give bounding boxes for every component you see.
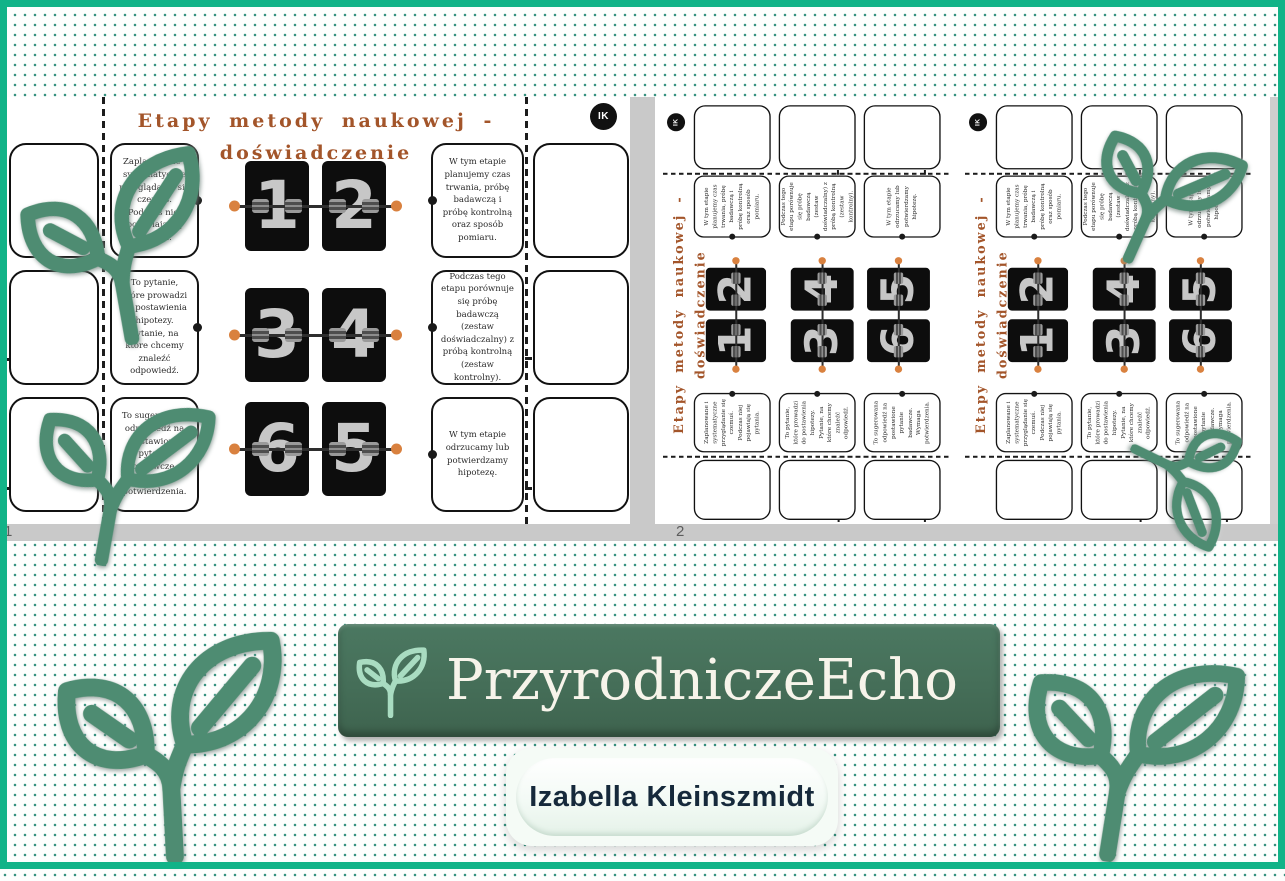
rod-end-dot — [229, 201, 240, 212]
brand-banner: PrzyrodniczeEcho — [338, 624, 1000, 737]
rod-end-dot — [732, 365, 739, 372]
rod-end-dot — [732, 257, 739, 264]
page-number-2: 2 — [676, 523, 684, 540]
step-description-text: W tym etapie planujemy czas trwania, pró… — [703, 181, 762, 231]
rod-end-dot — [229, 330, 240, 341]
flip-counter-row: 6 5 — [867, 268, 930, 362]
connector-dot — [899, 391, 905, 397]
sprout-leaf-icon — [356, 644, 430, 718]
creator-badge: IK — [590, 103, 617, 130]
rod-end-dot — [391, 201, 402, 212]
step-description-text: Podczas tego etapu porównuje się próbę b… — [779, 181, 855, 231]
flip-hinge — [1120, 324, 1129, 335]
step-description-box: W tym etapie odrzucamy lub potwierdzamy … — [431, 397, 524, 512]
empty-cut-box — [694, 105, 771, 169]
step-description-box: To sugerowana odpowiedź na postawione py… — [864, 393, 941, 453]
worksheet-title-line1: Etapy metody naukowej - — [116, 105, 516, 137]
cut-line-vertical — [525, 97, 528, 524]
step-description-text: W tym etapie odrzucamy lub potwierdzamy … — [440, 429, 515, 479]
step-description-text: Zaplanowane i systematyczne przyglądanie… — [1005, 399, 1064, 446]
flip-counter-row: 3 4 — [791, 268, 854, 362]
flip-hinge — [1120, 295, 1129, 306]
connector-dot — [1031, 234, 1037, 240]
flip-hinge — [1033, 295, 1042, 306]
sprout-leaf-icon — [996, 625, 1266, 881]
step-description-box: W tym etapie planujemy czas trwania, pró… — [694, 175, 771, 237]
connector-dot — [729, 234, 735, 240]
flip-hinge — [731, 295, 740, 306]
empty-cut-box — [533, 397, 629, 512]
flip-hinge — [1120, 272, 1129, 283]
flip-hinge — [1033, 324, 1042, 335]
rod-end-dot — [1034, 365, 1041, 372]
flip-counter-row: 3 4 — [245, 288, 386, 382]
empty-cut-box — [694, 460, 771, 520]
flip-hinge — [1033, 346, 1042, 357]
creator-badge: IK — [667, 113, 685, 131]
empty-cut-box — [779, 460, 856, 520]
connector-dot — [428, 323, 437, 332]
flip-hinge — [894, 272, 903, 283]
connector-dot — [814, 234, 820, 240]
step-description-text: Podczas tego etapu porównuje się próbę b… — [440, 271, 515, 384]
connector-dot — [1031, 391, 1037, 397]
creator-badge: IK — [969, 113, 987, 131]
step-description-text: To sugerowana odpowiedź na postawione py… — [873, 399, 932, 446]
flip-hinge — [818, 295, 827, 306]
author-pill: Izabella Kleinszmidt — [516, 758, 828, 836]
flip-hinge — [362, 328, 379, 342]
worksheet-title-line1: Etapy metody naukowej - — [970, 181, 991, 449]
connector-dot — [1116, 391, 1122, 397]
step-description-text: Zaplanowane i systematyczne przyglądanie… — [703, 399, 762, 446]
rod-end-dot — [1121, 365, 1128, 372]
empty-cut-box — [533, 270, 629, 385]
connector-dot — [899, 234, 905, 240]
flip-hinge — [252, 199, 269, 213]
cut-line-vertical — [663, 456, 949, 458]
flip-hinge — [329, 328, 346, 342]
flip-hinge — [285, 442, 302, 456]
empty-cut-box — [996, 460, 1073, 520]
flip-counter-row: 1 2 — [1008, 268, 1068, 362]
flip-hinge — [731, 346, 740, 357]
flip-hinge — [1196, 295, 1205, 306]
flip-counter-row: 1 2 — [245, 161, 386, 251]
connector-dot — [1201, 391, 1207, 397]
rod-end-dot — [895, 365, 902, 372]
rod-end-dot — [895, 257, 902, 264]
step-description-box: Zaplanowane i systematyczne przyglądanie… — [694, 393, 771, 453]
rod-end-dot — [1034, 257, 1041, 264]
step-description-text: W tym etapie planujemy czas trwania, pró… — [1005, 181, 1064, 231]
step-description-box: W tym etapie planujemy czas trwania, pró… — [996, 175, 1073, 237]
step-description-text: W tym etapie planujemy czas trwania, pró… — [440, 156, 515, 244]
rod-end-dot — [391, 330, 402, 341]
sprout-leaf-icon — [40, 619, 314, 870]
rotated-worksheet-copy: Etapy metody naukowej - doświadczenie IK… — [663, 104, 949, 522]
sprout-leaf-icon — [2, 371, 242, 585]
worksheet-sheet: Etapy metody naukowej - doświadczenie IK… — [663, 104, 949, 522]
flip-hinge — [894, 295, 903, 306]
flip-hinge — [818, 346, 827, 357]
step-description-box: W tym etapie odrzucamy lub potwierdzamy … — [864, 175, 941, 237]
rod-end-dot — [819, 365, 826, 372]
page-right-shadow — [1270, 97, 1280, 540]
flip-hinge — [1196, 324, 1205, 335]
empty-cut-box — [864, 105, 941, 169]
flip-hinge — [894, 324, 903, 335]
flip-counter-row: 1 2 — [706, 268, 766, 362]
worksheet-title-line1: Etapy metody naukowej - — [668, 181, 689, 449]
empty-cut-box — [864, 460, 941, 520]
flip-hinge — [252, 328, 269, 342]
author-name: Izabella Kleinszmidt — [529, 781, 815, 814]
step-description-box: Zaplanowane i systematyczne przyglądanie… — [996, 393, 1073, 453]
rod-end-dot — [819, 257, 826, 264]
rod-end-dot — [391, 444, 402, 455]
step-description-box: To pytanie, które prowadzi do postawieni… — [779, 393, 856, 453]
flip-hinge — [818, 272, 827, 283]
rod-end-dot — [1197, 365, 1204, 372]
step-description-text: W tym etapie odrzucamy lub potwierdzamy … — [885, 181, 919, 231]
flip-hinge — [731, 272, 740, 283]
step-description-text: To pytanie, które prowadzi do postawieni… — [784, 399, 851, 446]
sprout-leaf-icon — [5, 134, 241, 362]
flip-hinge — [329, 199, 346, 213]
connector-dot — [814, 391, 820, 397]
connector-dot — [729, 391, 735, 397]
flip-hinge — [362, 442, 379, 456]
brand-name: PrzyrodniczeEcho — [430, 653, 1000, 709]
empty-cut-box — [779, 105, 856, 169]
connector-dot — [428, 196, 437, 205]
flip-hinge — [1033, 272, 1042, 283]
step-description-box: W tym etapie planujemy czas trwania, pró… — [431, 143, 524, 258]
flip-hinge — [252, 442, 269, 456]
connector-dot — [428, 450, 437, 459]
flip-hinge — [1120, 346, 1129, 357]
flip-hinge — [894, 346, 903, 357]
step-description-box: Podczas tego etapu porównuje się próbę b… — [431, 270, 524, 385]
flip-hinge — [362, 199, 379, 213]
worksheet-preview: { "colors": { "frame_green": "#12b388", … — [0, 0, 1285, 869]
empty-cut-box — [996, 105, 1073, 169]
flip-hinge — [285, 328, 302, 342]
flip-hinge — [731, 324, 740, 335]
page-gap — [630, 97, 655, 540]
flip-hinge — [818, 324, 827, 335]
flip-hinge — [1196, 346, 1205, 357]
empty-cut-box — [533, 143, 629, 258]
flip-counter-row: 6 5 — [245, 402, 386, 496]
flip-hinge — [285, 199, 302, 213]
step-description-box: Podczas tego etapu porównuje się próbę b… — [779, 175, 856, 237]
author-card: Izabella Kleinszmidt — [506, 748, 838, 846]
flip-hinge — [329, 442, 346, 456]
flip-counter-row: 3 4 — [1093, 268, 1156, 362]
